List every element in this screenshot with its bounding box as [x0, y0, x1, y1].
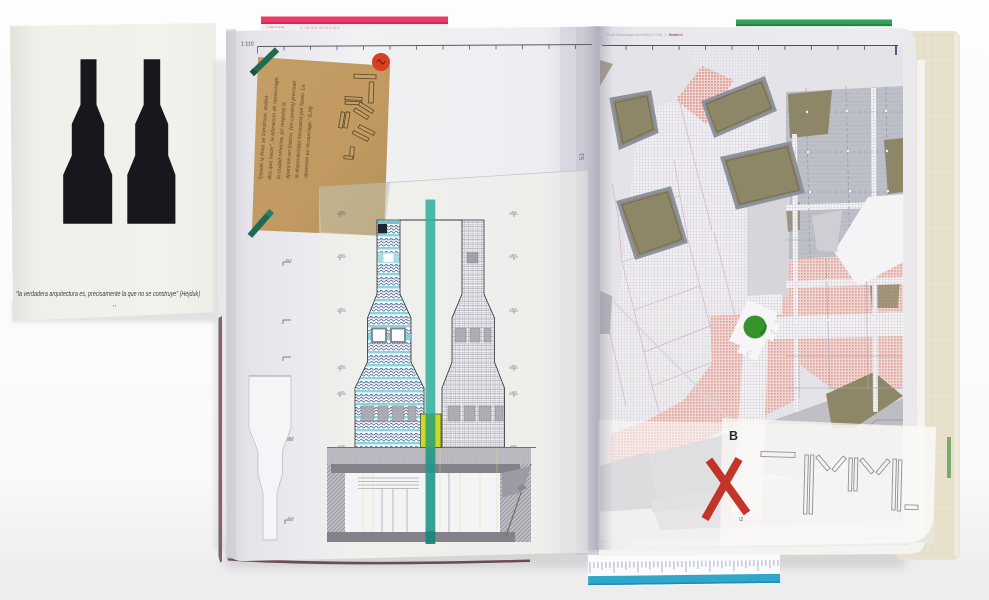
svg-text:,,: ,, — [113, 302, 116, 308]
svg-text:“la verdadera arquitectura es,: “la verdadera arquitectura es, precisame… — [16, 289, 200, 298]
svg-text:+48.2: +48.2 — [510, 210, 517, 214]
svg-text:\2: \2 — [739, 517, 743, 523]
svg-text:1 1111111 11111: 1 1111111 11111 — [266, 25, 285, 29]
svg-text:B: B — [729, 429, 738, 443]
svg-text:11 1 111 111 11 111 1111 11 11: 11 1 111 111 11 111 1111 11 111 11 — [300, 25, 340, 29]
svg-text:-12.0: -12.0 — [287, 516, 294, 520]
svg-text:1:110: 1:110 — [241, 42, 254, 48]
svg-text:+18.2: +18.2 — [510, 364, 517, 368]
svg-text:+30.4: +30.4 — [338, 307, 345, 311]
svg-text:+30.4: +30.4 — [510, 307, 517, 311]
svg-text:+36.0: +36.0 — [510, 253, 517, 257]
svg-text:PLANTAbasemapa.pdf 04/05/12: PLANTAbasemapa.pdf 04/05/12 17:26 - 1 - … — [607, 33, 683, 37]
svg-text:+12.6: +12.6 — [338, 390, 345, 394]
svg-text:+12.6: +12.6 — [510, 390, 517, 394]
svg-text:+36.0: +36.0 — [338, 253, 345, 257]
svg-text:+18.2: +18.2 — [338, 364, 345, 368]
svg-text:+48.2: +48.2 — [338, 210, 345, 214]
svg-text:-01.2: -01.2 — [285, 258, 292, 262]
